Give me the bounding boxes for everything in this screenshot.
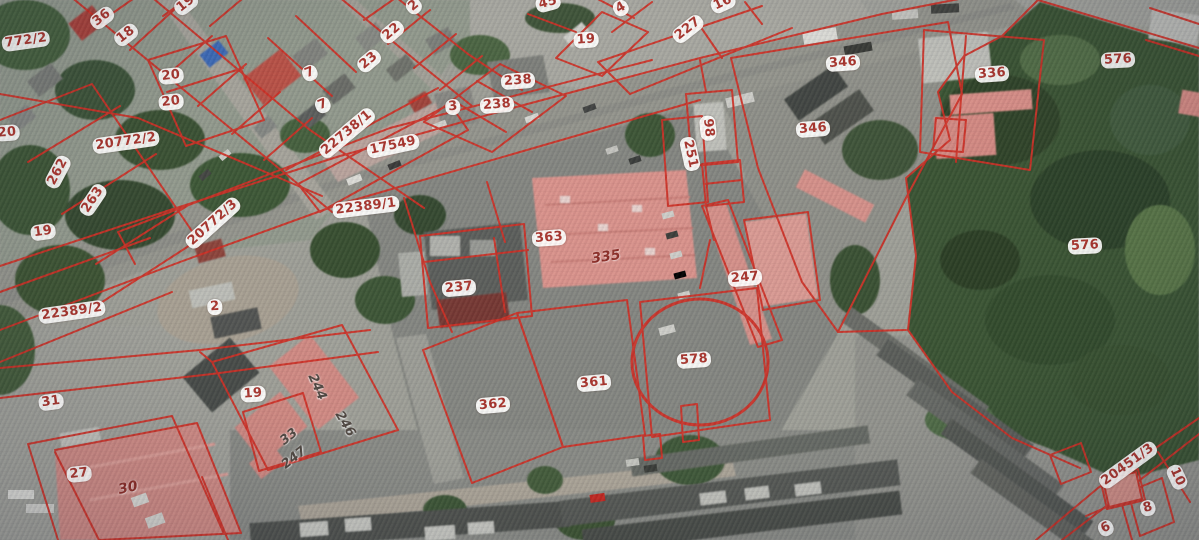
- parcel-label-2: 2: [207, 298, 223, 315]
- parcel-label-22389-2: 22389/2: [38, 299, 107, 324]
- parcel-label-19: 19: [30, 222, 57, 241]
- parcel-label-3: 3: [445, 98, 462, 115]
- parcel-label-772-2: 772/2: [1, 30, 51, 53]
- parcel-label-346: 346: [825, 54, 860, 72]
- parcel-label-6: 6: [1096, 517, 1117, 538]
- parcel-label-238: 238: [479, 96, 514, 114]
- parcel-label-20772-3: 20772/3: [183, 195, 244, 252]
- parcel-label-19: 19: [573, 31, 599, 49]
- parcel-labels-layer: 361819772/220202020772/22622631922389/22…: [0, 0, 1199, 540]
- parcel-label-246: 246: [332, 408, 359, 439]
- parcel-label-20: 20: [158, 93, 184, 111]
- parcel-label-20772-2: 20772/2: [92, 129, 161, 154]
- parcel-label-336: 336: [974, 65, 1009, 83]
- parcel-label-227: 227: [670, 12, 707, 46]
- parcel-label-262: 262: [43, 153, 73, 191]
- parcel-label-98: 98: [699, 115, 717, 141]
- parcel-label-8: 8: [1139, 498, 1158, 517]
- parcel-label-17549: 17549: [366, 133, 421, 160]
- parcel-label-2: 2: [403, 0, 425, 17]
- parcel-label-238: 238: [500, 72, 535, 90]
- parcel-label-31: 31: [38, 392, 65, 411]
- parcel-label-237: 237: [441, 279, 476, 298]
- parcel-label-244: 244: [305, 372, 330, 403]
- parcel-label-10: 10: [1165, 462, 1190, 491]
- parcel-label-576: 576: [1068, 237, 1103, 255]
- parcel-label-346: 346: [795, 120, 830, 138]
- parcel-label-251: 251: [679, 136, 702, 173]
- parcel-label-247: 247: [727, 269, 762, 288]
- parcel-label-36: 36: [87, 4, 116, 32]
- parcel-label-362: 362: [475, 396, 510, 415]
- parcel-label-7: 7: [300, 63, 320, 84]
- parcel-label-30: 30: [117, 478, 139, 498]
- parcel-label-20: 20: [158, 67, 184, 85]
- map-canvas[interactable]: 361819772/220202020772/22622631922389/22…: [0, 0, 1199, 540]
- parcel-label-45: 45: [534, 0, 562, 14]
- parcel-label-23: 23: [354, 47, 383, 75]
- parcel-label-7: 7: [313, 95, 333, 116]
- parcel-label-20: 20: [0, 124, 20, 142]
- parcel-label-363: 363: [531, 229, 566, 247]
- parcel-label-22389-1: 22389/1: [332, 195, 401, 219]
- parcel-label-22: 22: [377, 18, 406, 46]
- parcel-label-4: 4: [610, 0, 631, 19]
- parcel-label-16: 16: [708, 0, 737, 15]
- parcel-label-18: 18: [111, 21, 140, 49]
- parcel-label-27: 27: [66, 465, 92, 483]
- parcel-label-19: 19: [240, 385, 266, 403]
- parcel-label-20451-3: 20451/3: [1096, 439, 1160, 491]
- parcel-label-247: 247: [279, 444, 310, 473]
- parcel-label-335: 335: [590, 247, 621, 267]
- parcel-label-263: 263: [77, 181, 109, 218]
- parcel-label-578: 578: [676, 351, 711, 369]
- parcel-label-576: 576: [1101, 51, 1136, 69]
- parcel-label-19: 19: [171, 0, 200, 18]
- parcel-label-361: 361: [576, 374, 611, 393]
